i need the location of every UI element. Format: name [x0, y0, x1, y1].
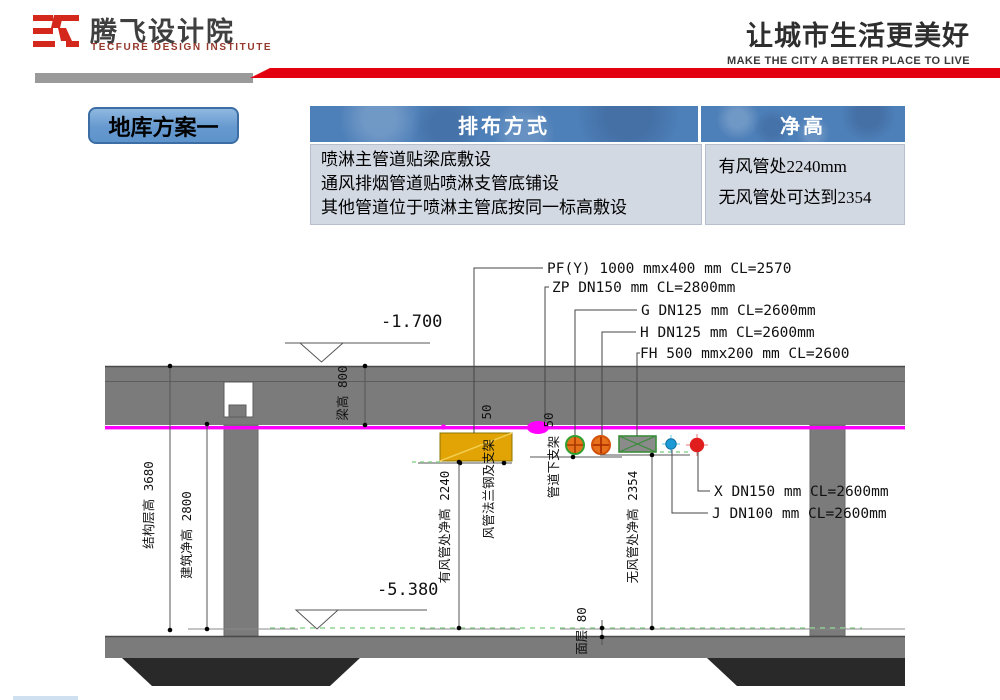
dim-dot	[502, 461, 507, 466]
sprinkler-hanger	[441, 424, 446, 429]
dim-dot	[457, 626, 462, 631]
dim-dot	[650, 453, 655, 458]
dim-dot	[205, 422, 210, 427]
slide: 腾飞设计院 TECFURE DESIGN INSTITUTE 让城市生活更美好 …	[0, 0, 1000, 700]
elevation-upper: -1.700	[381, 312, 442, 332]
label-zp-pipe: ZP DN150 mm CL=2800mm	[552, 280, 736, 296]
dim-finish-layer: 面层 80	[574, 607, 589, 655]
dim-duct-zone-clear: 有风管处净高 2240	[437, 471, 452, 584]
dim-dot	[600, 626, 605, 631]
dim-dot	[363, 364, 368, 369]
label-pipe-support: 管道下支架	[546, 436, 561, 499]
label-flange-support: 风管法兰钢及支架	[481, 439, 496, 539]
elev-lower-triangle	[296, 610, 338, 629]
leader-j	[672, 450, 708, 513]
dim-dot	[600, 635, 605, 640]
secondary-beam-stub	[229, 405, 246, 417]
right-column	[810, 425, 845, 636]
sprinkler-main-pipe	[105, 426, 905, 429]
dim-flange-support-50: 50	[479, 404, 494, 419]
section-drawing: PF(Y) 1000 mmx400 mm CL=2570 ZP DN150 mm…	[0, 0, 1000, 700]
elevation-lower: -5.380	[377, 580, 438, 600]
left-column	[224, 425, 258, 636]
dim-structure-height: 结构层高 3680	[141, 461, 156, 549]
dim-dot	[363, 423, 368, 428]
label-pf-duct: PF(Y) 1000 mmx400 mm CL=2570	[547, 261, 791, 277]
dim-no-duct-clear: 无风管处净高 2354	[625, 471, 640, 584]
label-h-pipe: H DN125 mm CL=2600mm	[640, 325, 815, 341]
elev-upper-triangle	[300, 343, 343, 362]
bottom-accent-line	[13, 696, 78, 700]
dim-dot	[168, 628, 173, 633]
dim-pipe-support-50: 50	[541, 412, 556, 427]
dim-dot	[205, 627, 210, 632]
floor-slab	[105, 636, 905, 658]
label-x-pipe: X DN150 mm CL=2600mm	[714, 484, 889, 500]
pipe-x-section	[690, 438, 704, 452]
label-j-pipe: J DN100 mm CL=2600mm	[712, 506, 887, 522]
dim-dot	[571, 455, 576, 460]
label-fh-duct: FH 500 mmx200 mm CL=2600	[640, 346, 850, 362]
pipe-j-section	[666, 439, 676, 449]
dim-dot	[168, 364, 173, 369]
label-g-pipe: G DN125 mm CL=2600mm	[641, 303, 816, 319]
dim-dot	[457, 460, 462, 465]
right-footing	[707, 658, 905, 686]
dim-dot	[650, 626, 655, 631]
left-footing	[122, 658, 360, 686]
dim-building-clear: 建筑净高 2800	[179, 491, 194, 579]
dim-beam-height: 梁高 800	[335, 365, 350, 420]
leader-x	[698, 452, 710, 491]
